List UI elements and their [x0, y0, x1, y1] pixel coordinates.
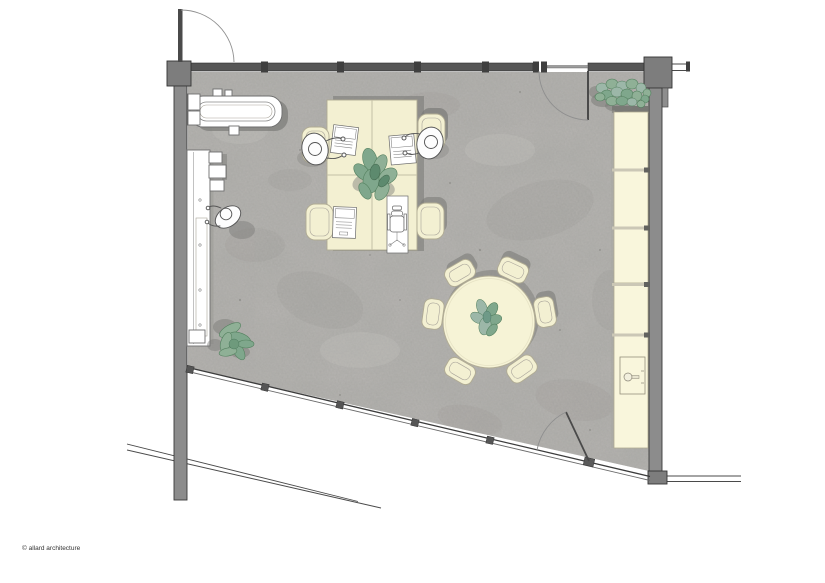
- top-wall-right-segment: [588, 63, 646, 71]
- desk-chair: [417, 203, 444, 239]
- appliance: [209, 165, 226, 178]
- left-wall: [174, 86, 187, 500]
- cabinet-unit-sink: [614, 336, 648, 448]
- floor-plan-page: © allard architecture: [0, 0, 825, 583]
- door-swing-arc: [181, 10, 234, 62]
- curb-line: [127, 444, 358, 502]
- copyright-text: © allard architecture: [22, 544, 81, 552]
- storage-cabinets: [611, 106, 650, 448]
- cabinet-unit: [614, 171, 648, 227]
- side-table: [188, 111, 200, 125]
- cabinet-unit: [614, 285, 648, 334]
- door-top-left: [178, 9, 234, 62]
- bottom-right-wall-column: [648, 471, 667, 484]
- right-wall: [649, 88, 662, 473]
- table-chair: [421, 298, 445, 330]
- door-leaf: [178, 9, 183, 62]
- floor-plan-drawing: © allard architecture: [0, 0, 825, 583]
- top-door-threshold: [547, 66, 588, 69]
- curb-line: [127, 450, 381, 508]
- laptop: [332, 207, 356, 239]
- person-head: [220, 208, 232, 220]
- top-right-wall-column: [644, 57, 672, 88]
- stool: [229, 126, 239, 135]
- empty-office-chair-symbol: [387, 196, 408, 253]
- cabinet-unit: [614, 112, 648, 169]
- top-left-wall-column: [167, 61, 191, 86]
- person-head: [425, 136, 438, 149]
- desk-chair: [306, 204, 333, 240]
- cabinet-unit: [614, 229, 648, 283]
- person-head: [309, 143, 322, 156]
- top-wall-left-segment: [190, 63, 533, 71]
- side-table: [188, 94, 200, 110]
- appliance: [209, 152, 222, 163]
- appliance: [210, 180, 224, 191]
